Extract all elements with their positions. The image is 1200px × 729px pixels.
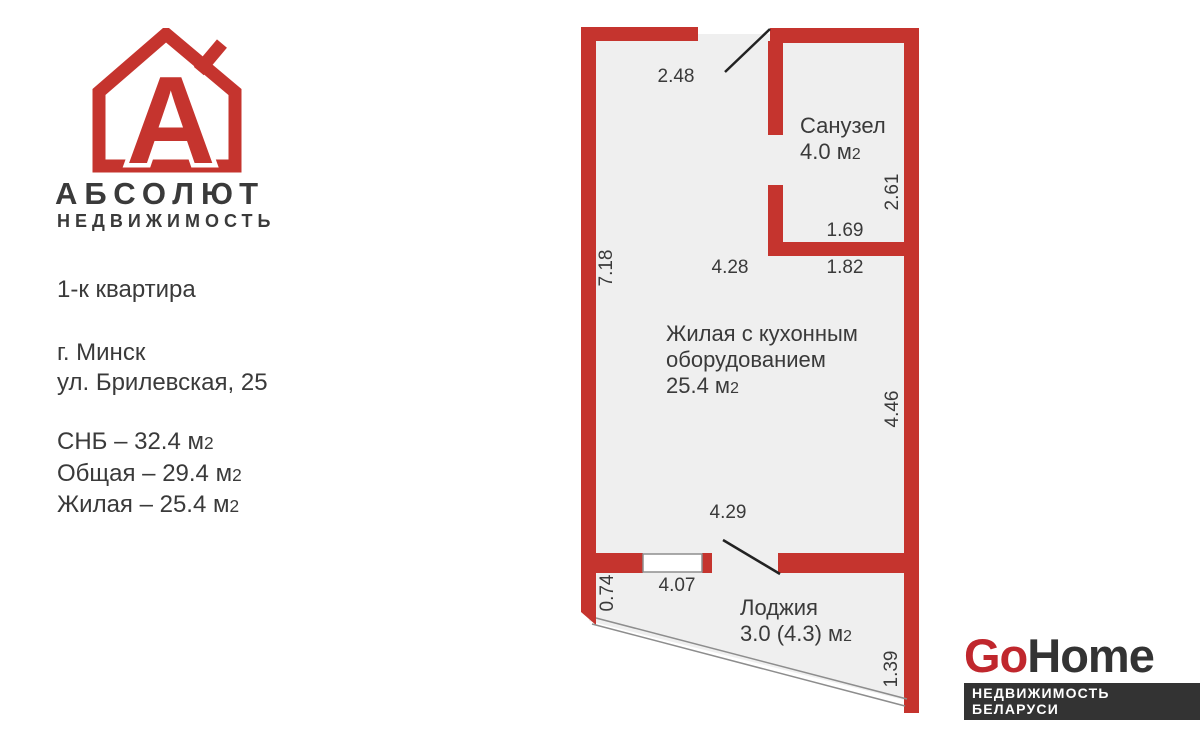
dim-entry-width: 2.48 (644, 66, 708, 88)
room-bathroom-area: 4.0 м2 (800, 139, 886, 168)
room-loggia-label: Лоджия 3.0 (4.3) м2 (740, 595, 852, 650)
dim-left-height: 7.18 (596, 236, 618, 300)
gohome-home: Home (1027, 629, 1154, 682)
wall-bathroom-left-upper (768, 41, 783, 135)
flyer-canvas: A АБСОЛЮТ НЕДВИЖИМОСТЬ 1-к квартира г. М… (0, 0, 1200, 729)
room-bathroom-area-sup: 2 (852, 146, 861, 163)
room-loggia-area-text: 3.0 (4.3) м (740, 621, 843, 646)
room-bathroom-area-text: 4.0 м (800, 139, 852, 164)
gohome-tagline-badge: НЕДВИЖИМОСТЬ БЕЛАРУСИ (964, 683, 1200, 720)
window (643, 554, 702, 572)
room-living-area-text: 25.4 м (666, 373, 730, 398)
gohome-wordmark: GoHome (964, 630, 1200, 682)
gohome-logo: GoHome НЕДВИЖИМОСТЬ БЕЛАРУСИ (964, 630, 1200, 720)
gohome-go: Go (964, 629, 1027, 682)
room-loggia-name: Лоджия (740, 595, 852, 621)
room-loggia-area-sup: 2 (843, 628, 852, 645)
dim-bathroom-width: 1.69 (813, 220, 877, 242)
dim-loggia-right-height: 1.39 (881, 637, 903, 701)
room-living-area-sup: 2 (730, 380, 739, 397)
wall-bottom-right (778, 553, 919, 573)
wall-top-left (581, 27, 698, 41)
wall-right (904, 28, 919, 713)
wall-bottom-stub (702, 553, 712, 573)
wall-left (581, 27, 596, 625)
room-living-label: Жилая с кухонным оборудованием 25.4 м2 (666, 321, 858, 402)
room-living-name-line1: Жилая с кухонным (666, 321, 858, 347)
room-living-area: 25.4 м2 (666, 373, 858, 402)
dim-living-bottom-width: 4.29 (696, 502, 760, 524)
room-living-name-line2: оборудованием (666, 347, 858, 373)
dim-loggia-width: 4.07 (645, 575, 709, 597)
room-loggia-area: 3.0 (4.3) м2 (740, 621, 852, 650)
room-bathroom-name: Санузел (800, 113, 886, 139)
dim-loggia-left-height: 0.74 (597, 561, 619, 625)
wall-top-right (770, 28, 919, 43)
dim-bathroom-height: 2.61 (882, 160, 904, 224)
wall-bathroom-bottom (768, 242, 919, 256)
room-bathroom-label: Санузел 4.0 м2 (800, 113, 886, 168)
dim-bathroom-width-outer: 1.82 (813, 257, 877, 279)
dim-living-right-height: 4.46 (882, 377, 904, 441)
dim-living-top-width: 4.28 (698, 257, 762, 279)
